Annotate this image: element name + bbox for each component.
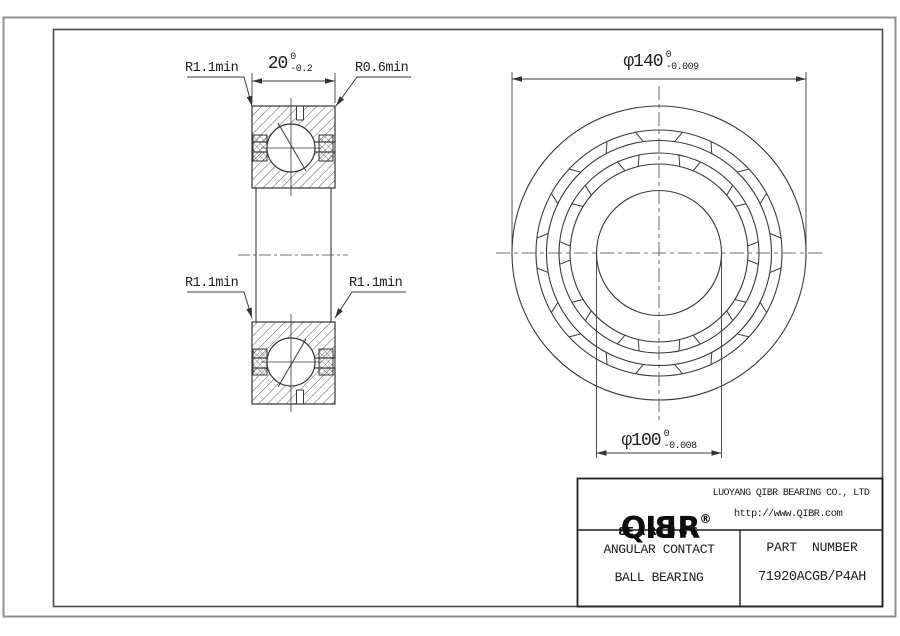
product-type-line2: BALL BEARING <box>615 571 704 584</box>
page-edge-border <box>4 18 896 617</box>
company-name: LUOYANG QIBR BEARING CO., LTD <box>713 489 870 499</box>
bearing-cross-section-view <box>238 98 348 412</box>
width-dimension-tolerance: 0 -0.2 <box>290 52 312 75</box>
bore-diameter-value: φ100 <box>621 432 660 450</box>
bearings-rest: EARINGS <box>627 526 702 538</box>
radius-label-top-right: R0.6min <box>355 62 408 76</box>
bore-diameter-tolerance: 0 -0.008 <box>664 429 697 452</box>
radius-label-top-left: R1.1min <box>185 62 238 76</box>
bore-tol-upper: 0 <box>664 429 697 441</box>
outer-diameter-tolerance: 0 -0.009 <box>666 50 699 73</box>
width-dimension-label: 20 0 -0.2 <box>268 52 313 75</box>
outer-diameter-dimension-label: φ140 0 -0.009 <box>623 50 698 73</box>
part-number-label: PART NUMBER <box>766 541 857 554</box>
bore-tol-lower: -0.008 <box>664 441 697 453</box>
engineering-drawing-page: R1.1min 20 0 -0.2 R0.6min R1.1min R1.1mi… <box>0 0 900 636</box>
outer-diameter-value: φ140 <box>623 53 662 71</box>
od-tol-lower: -0.009 <box>666 62 699 74</box>
bearing-front-view <box>496 86 822 422</box>
part-number-value: 71920ACGB/P4AH <box>758 571 866 585</box>
bore-diameter-dimension-label: φ100 0 -0.008 <box>621 429 696 452</box>
radius-label-mid-left: R1.1min <box>185 277 238 291</box>
bearings-letter-b-mirrored: B <box>615 527 626 538</box>
width-tol-upper: 0 <box>290 52 312 64</box>
company-website: http://www.QIBR.com <box>734 509 842 520</box>
radius-label-mid-right: R1.1min <box>349 277 402 291</box>
product-type-line1: ANGULAR CONTACT <box>603 543 714 556</box>
width-tol-lower: -0.2 <box>290 64 312 76</box>
drawing-canvas <box>0 0 900 636</box>
width-dimension-value: 20 <box>268 55 288 73</box>
od-tol-upper: 0 <box>666 50 699 62</box>
